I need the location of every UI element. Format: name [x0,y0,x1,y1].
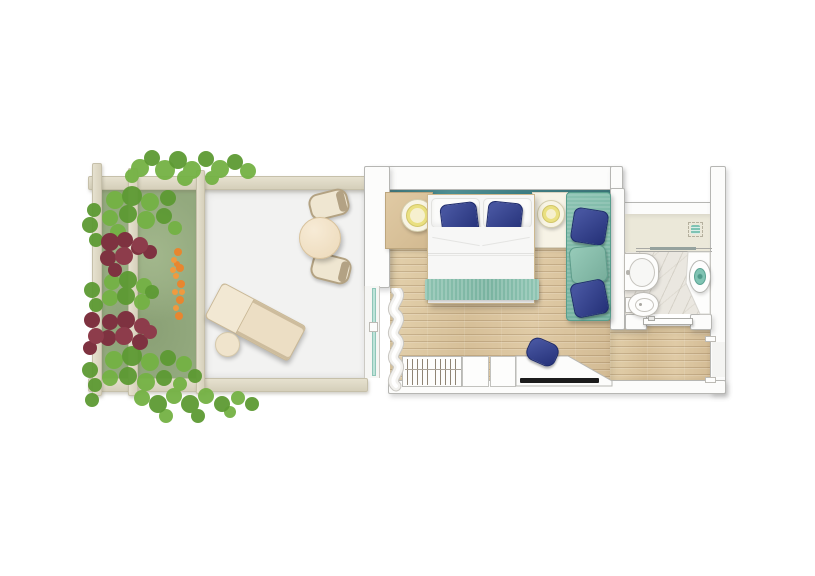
lamp-right-shade [546,209,556,219]
entrance-door-opening [712,342,725,377]
tv-bar [520,378,599,383]
terrace-glass-door-glass [372,288,376,376]
curtain [384,288,408,392]
duvet-fold-left [432,237,479,246]
bidet-drain [639,303,642,306]
wall-bathroom-bottom-right [690,314,712,330]
storage-cabinet-2 [490,356,516,387]
bed-runner-seafoam [425,279,539,300]
glass-door-handle [369,322,378,332]
terrace-glass-door-track [364,286,380,378]
wardrobe-hangers-right [435,359,459,385]
daybed-cushion-seafoam [568,244,608,284]
washbasin-bowl [629,258,655,287]
chair-back-trim [335,190,348,212]
wardrobe [402,356,462,387]
storage-cabinet-1 [462,356,489,387]
daybed [566,192,611,321]
bathroom-door-handle [648,316,655,321]
washbasin-faucet [626,270,630,275]
lamp-right [537,200,565,228]
garden-foliage [80,140,270,430]
entrance-door-jamb-bottom [705,377,716,383]
shower-drain-grate [691,225,700,234]
floor-plan [0,0,815,576]
lamp-left-shade [410,208,425,223]
double-bed [427,194,535,304]
terrace-side-table [215,332,240,357]
terrace-dining-table [299,217,341,259]
duvet-fold-right [482,237,529,246]
toilet-lid-accent [694,268,706,285]
entrance-door-jamb-top [705,336,716,342]
toilet [689,260,711,293]
wardrobe-hangers-left [407,359,431,385]
washbasin-vanity [624,253,659,291]
chair-back-trim [337,260,350,282]
corridor-wood-floor [610,326,711,380]
wall-top [368,166,622,190]
shower-drain [688,222,703,237]
wall-bedroom-bathroom-partition [610,188,625,330]
duvet-seam-line [428,253,534,256]
bidet-bowl [635,298,654,312]
daybed-cushion-blue-bottom [569,278,610,319]
daybed-cushion-blue-top [569,206,609,246]
bidet [628,292,659,317]
wardrobe-rail [405,369,461,370]
